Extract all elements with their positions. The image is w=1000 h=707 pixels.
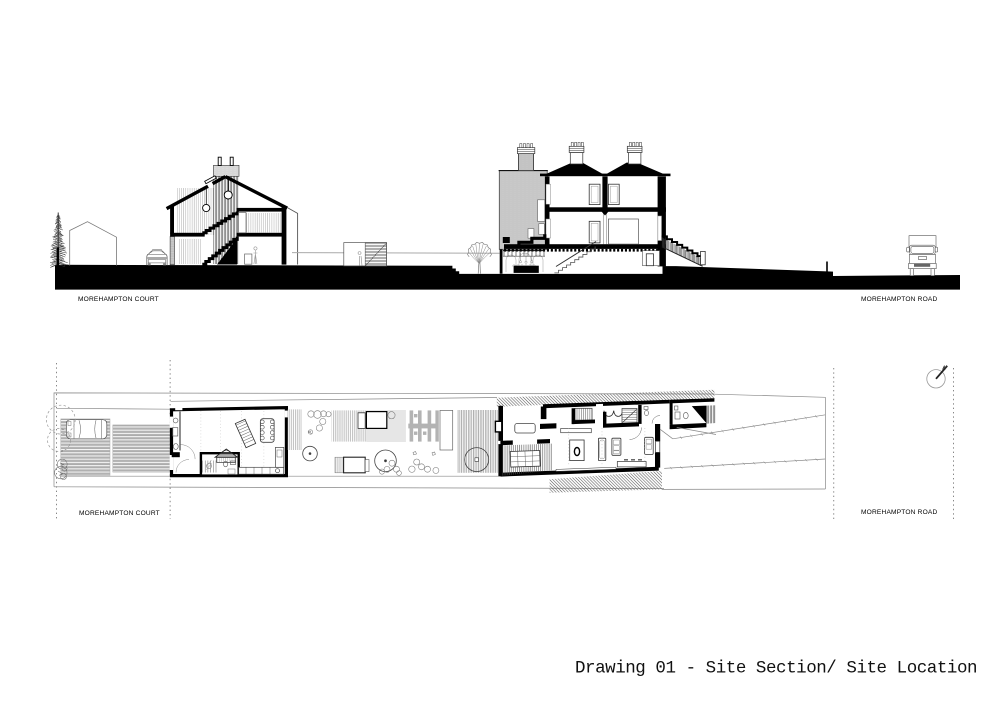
svg-text:MOREHAMPTON COURT: MOREHAMPTON COURT	[78, 296, 159, 303]
svg-text:MOREHAMPTON COURT: MOREHAMPTON COURT	[79, 510, 160, 517]
svg-text:MOREHAMPTON ROAD: MOREHAMPTON ROAD	[861, 296, 937, 303]
svg-text:Drawing 01 - Site Section/ Sit: Drawing 01 - Site Section/ Site Location	[575, 659, 977, 679]
svg-text:MOREHAMPTON ROAD: MOREHAMPTON ROAD	[861, 509, 937, 516]
